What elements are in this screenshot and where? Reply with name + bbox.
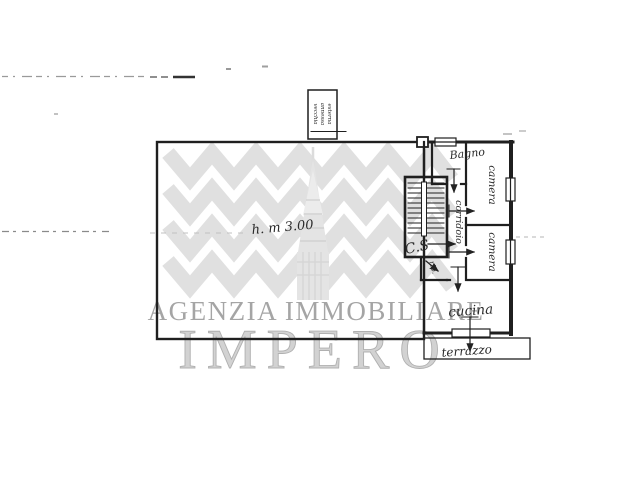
- room-label-bagno: Bagno: [448, 145, 486, 162]
- room-label-terrazzo: terrazzo: [441, 342, 492, 359]
- watermark-brand-text: IMPERO: [178, 319, 450, 381]
- scan-speck: [54, 113, 58, 115]
- room-label-cucina: cucina: [448, 301, 494, 320]
- scan-speck: [262, 66, 268, 68]
- door-sill-symbol: [452, 329, 490, 337]
- annex-note-line-2: annessa: [319, 103, 325, 126]
- room-label-camera-2: camera: [486, 232, 498, 272]
- scanned-floorplan-page: AGENZIA IMMOBILIARE IMPERO: [0, 0, 636, 497]
- scan-speck: [226, 68, 231, 70]
- annex-note-line-3: esterna: [326, 104, 332, 125]
- annex-box-note: vecchia annessa esterna: [312, 103, 332, 126]
- room-label-camera-1: camera: [486, 165, 498, 205]
- floorplan-canvas: AGENZIA IMMOBILIARE IMPERO: [0, 0, 636, 497]
- room-label-corridoio: corridoio: [453, 200, 464, 244]
- annex-note-line-1: vecchia: [312, 103, 318, 124]
